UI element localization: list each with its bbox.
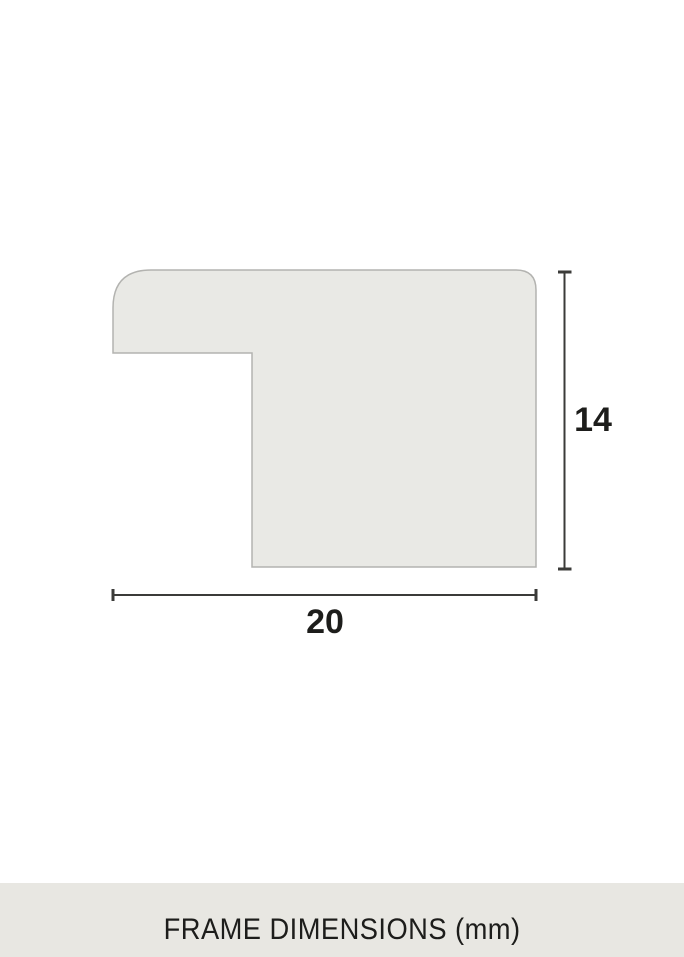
caption-bar: FRAME DIMENSIONS (mm) — [0, 883, 684, 957]
frame-profile-shape — [113, 270, 536, 567]
height-dimension-label: 14 — [574, 401, 612, 439]
caption-text: FRAME DIMENSIONS (mm) — [164, 913, 521, 947]
product-dimension-image: 14 20 FRAME DIMENSIONS (mm) — [0, 0, 684, 957]
frame-profile-diagram: 14 20 — [0, 0, 684, 883]
width-dimension-label: 20 — [306, 603, 344, 641]
width-dimension: 20 — [113, 589, 536, 641]
height-dimension: 14 — [558, 272, 612, 569]
